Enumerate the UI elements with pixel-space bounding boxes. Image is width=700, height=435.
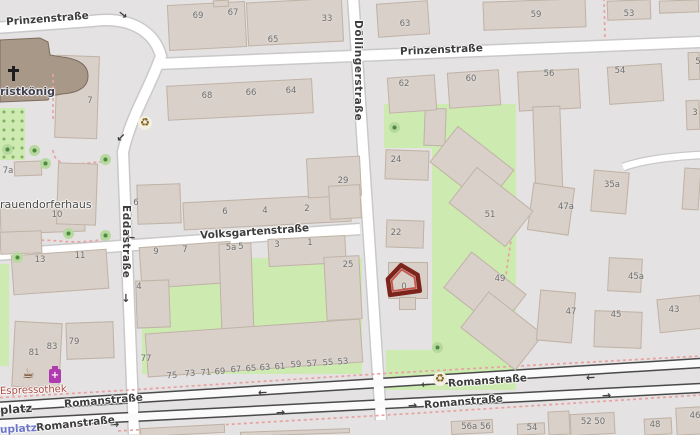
tree-icon (432, 342, 443, 353)
tree-icon (100, 154, 111, 165)
house-number: 47a (558, 202, 574, 212)
cafe-icon: ☕ (22, 367, 35, 381)
building (0, 230, 42, 254)
building (547, 410, 570, 435)
house-number: 64 (286, 86, 297, 96)
place-label: uplatz (0, 422, 37, 435)
house-number: 60 (466, 74, 477, 84)
house-number: 1 (307, 238, 312, 248)
house-number: 7 (87, 96, 92, 106)
house-number: 59 (290, 360, 301, 371)
house-number: 29 (338, 176, 349, 186)
oneway-arrow-icon: → (121, 293, 131, 302)
house-number: 5a (226, 243, 237, 253)
place-label: ristkönig (0, 85, 55, 98)
service-road (623, 155, 700, 167)
house-number: 61 (274, 362, 285, 373)
oneway-arrow-icon: → (276, 408, 286, 418)
house-number: 43 (669, 305, 680, 315)
house-number: 75 (166, 371, 177, 382)
house-number: 51 (485, 210, 496, 220)
house-number: 59 (531, 10, 542, 20)
house-number: 69 (193, 11, 204, 21)
tree-icon (2, 144, 13, 155)
building (218, 242, 254, 339)
building (328, 184, 362, 220)
tree-icon (40, 158, 51, 169)
oneway-arrow-icon: ← (258, 388, 268, 398)
house-number: 77 (141, 354, 152, 364)
tree-icon (63, 228, 74, 239)
building (11, 249, 110, 296)
house-number: 45 (611, 310, 622, 320)
tree-icon (389, 122, 400, 133)
house-number: 79 (69, 337, 80, 347)
house-number: 25 (343, 260, 354, 270)
recycling-icon: ♻ (433, 372, 447, 386)
house-number: 7 (182, 245, 187, 255)
house-number: 53 (337, 357, 348, 368)
house-number: 83 (47, 342, 58, 352)
house-number: 67 (228, 8, 239, 18)
street-label: Döllingerstraße (352, 20, 364, 121)
building (590, 170, 630, 215)
map-viewport[interactable]: ♻♻☕+→→→←←←←←←→→→→69673365635953537626056… (0, 0, 700, 435)
house-number: 55 (322, 358, 333, 369)
house-number: 66 (246, 88, 257, 98)
house-number: 81 (29, 348, 40, 358)
oneway-arrow-icon: ← (586, 373, 596, 383)
tree-icon (29, 145, 40, 156)
house-number: 63 (259, 363, 270, 374)
house-number: 63 (400, 19, 411, 29)
house-number: 67 (230, 365, 241, 376)
recycling-icon: ♻ (138, 116, 152, 130)
house-number: 33 (322, 14, 333, 24)
house-number: 56 (544, 69, 555, 79)
building (213, 0, 229, 7)
house-number: 48 (650, 420, 661, 430)
street-label: platz (0, 401, 33, 417)
footpath (604, 0, 605, 38)
house-number: 4 (262, 206, 267, 216)
church-cross-icon (12, 66, 15, 81)
house-number: 65 (245, 364, 256, 375)
tree-icon (100, 230, 111, 241)
building (14, 161, 43, 177)
house-number: 56a 56 (461, 422, 491, 432)
house-number: 46 (690, 411, 700, 421)
house-number: 2 (304, 204, 309, 214)
house-number: 5 (695, 57, 700, 67)
house-number: 68 (202, 91, 213, 101)
house-number: 10 (52, 210, 63, 220)
house-number: 69 (214, 367, 225, 378)
house-number: 11 (75, 251, 86, 261)
house-number: 24 (391, 155, 402, 165)
house-number: 49 (495, 274, 506, 284)
house-number: 6 (133, 198, 138, 208)
house-number: 3 (692, 108, 697, 118)
house-number: 71 (200, 368, 211, 379)
building (399, 297, 416, 310)
house-number: 22 (391, 228, 402, 238)
street-label: Eddastraße (120, 205, 132, 279)
house-number: 57 (306, 359, 317, 370)
house-number: 4 (136, 282, 141, 292)
house-number: 3 (274, 240, 279, 250)
building (136, 183, 181, 225)
chemist-icon: + (49, 369, 61, 383)
house-number: 9 (153, 247, 158, 257)
house-number: 65 (268, 35, 279, 45)
house-number: 52 50 (581, 417, 605, 427)
building (387, 74, 437, 113)
house-number: 6 (222, 207, 227, 217)
house-number: 53 (624, 9, 635, 19)
oneway-arrow-icon: ← (421, 380, 431, 390)
house-number: 54 (527, 423, 538, 433)
house-number: 73 (184, 369, 195, 380)
selected-building-home-marker[interactable] (383, 260, 423, 299)
house-number: 35a (604, 180, 620, 190)
place-label: Espressothek (0, 384, 67, 397)
building (659, 0, 699, 14)
building (423, 108, 446, 147)
house-number: 62 (399, 79, 410, 89)
building (682, 167, 700, 210)
house-number: 5 (238, 242, 243, 252)
house-number: 13 (35, 255, 46, 265)
oneway-arrow-icon: → (408, 401, 418, 411)
house-number: 47 (566, 307, 577, 317)
oneway-arrow-icon: → (602, 391, 612, 401)
house-number: 54 (615, 66, 626, 76)
building (384, 149, 429, 181)
house-number: 7a (3, 166, 14, 176)
place-label: rauendorferhaus (0, 198, 92, 211)
tree-icon (12, 252, 23, 263)
house-number: 45a (628, 272, 644, 282)
